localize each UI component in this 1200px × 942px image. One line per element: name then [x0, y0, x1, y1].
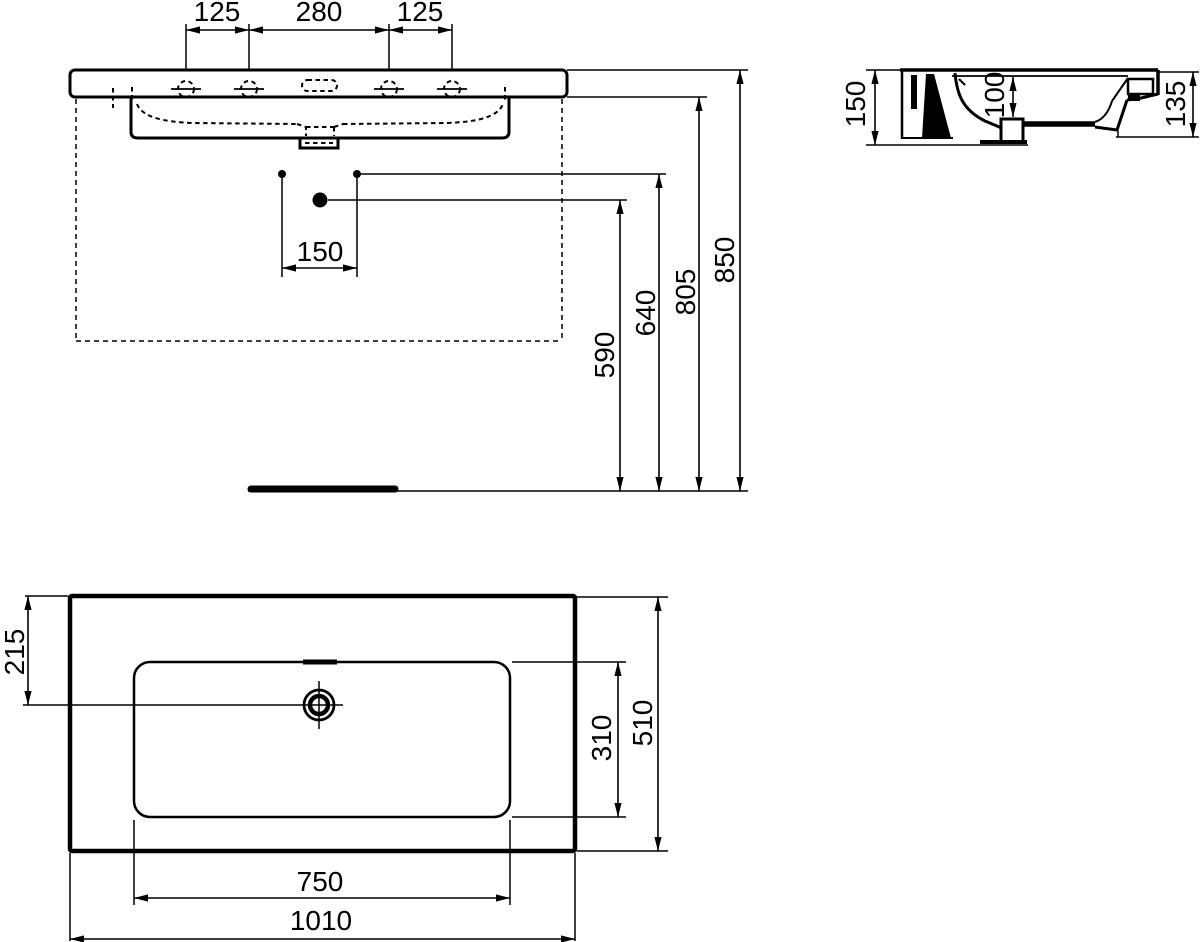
- apron-notch: [1128, 79, 1153, 94]
- dim-label-135: 135: [1160, 81, 1191, 128]
- waste-point: [313, 193, 328, 208]
- washbasin-technical-drawing: 125 280 125: [0, 0, 1200, 942]
- apron-notch-fill: [1128, 94, 1140, 101]
- dim-label-280: 280: [296, 0, 343, 27]
- dim-label-150: 150: [297, 236, 344, 267]
- dim-label-125-left: 125: [194, 0, 241, 27]
- bowl-funnel-contour: [297, 124, 343, 136]
- section-fill-mount: [922, 74, 951, 138]
- dim-label-125-right: 125: [397, 0, 444, 27]
- plan-view: 215 510 310 750 1010: [0, 596, 668, 941]
- dim-label-640: 640: [630, 290, 661, 337]
- bowl-tick: [959, 79, 965, 85]
- dim-label-805: 805: [670, 269, 701, 316]
- dim-label-510: 510: [627, 700, 658, 747]
- drawing-canvas: 125 280 125: [0, 0, 1200, 942]
- dim-label-590: 590: [589, 332, 620, 379]
- dim-label-310: 310: [586, 715, 617, 762]
- apron-inner-line: [1112, 78, 1128, 101]
- dim-label-100: 100: [979, 72, 1010, 119]
- bowl-front-curve: [1095, 101, 1112, 122]
- dim-label-750: 750: [297, 866, 344, 897]
- plan-bowl-rect: [134, 662, 510, 817]
- dim-label-1010: 1010: [290, 905, 352, 936]
- dim-label-850: 850: [709, 237, 740, 284]
- dim-label-215: 215: [0, 629, 30, 676]
- basin-deck-front: [70, 70, 567, 97]
- supply-point-right: [353, 170, 361, 178]
- supply-point-left: [278, 170, 286, 178]
- drain-section: [1001, 119, 1023, 142]
- bowl-hidden-contour: [343, 104, 503, 124]
- front-elevation-view: 125 280 125: [70, 0, 748, 491]
- bowl-hidden-contour: [137, 104, 297, 124]
- dim-label-150-side: 150: [840, 81, 871, 128]
- basin-body-outline: [131, 97, 509, 138]
- section-fill-back: [911, 75, 917, 109]
- side-section-view: 150 100 135: [840, 70, 1199, 145]
